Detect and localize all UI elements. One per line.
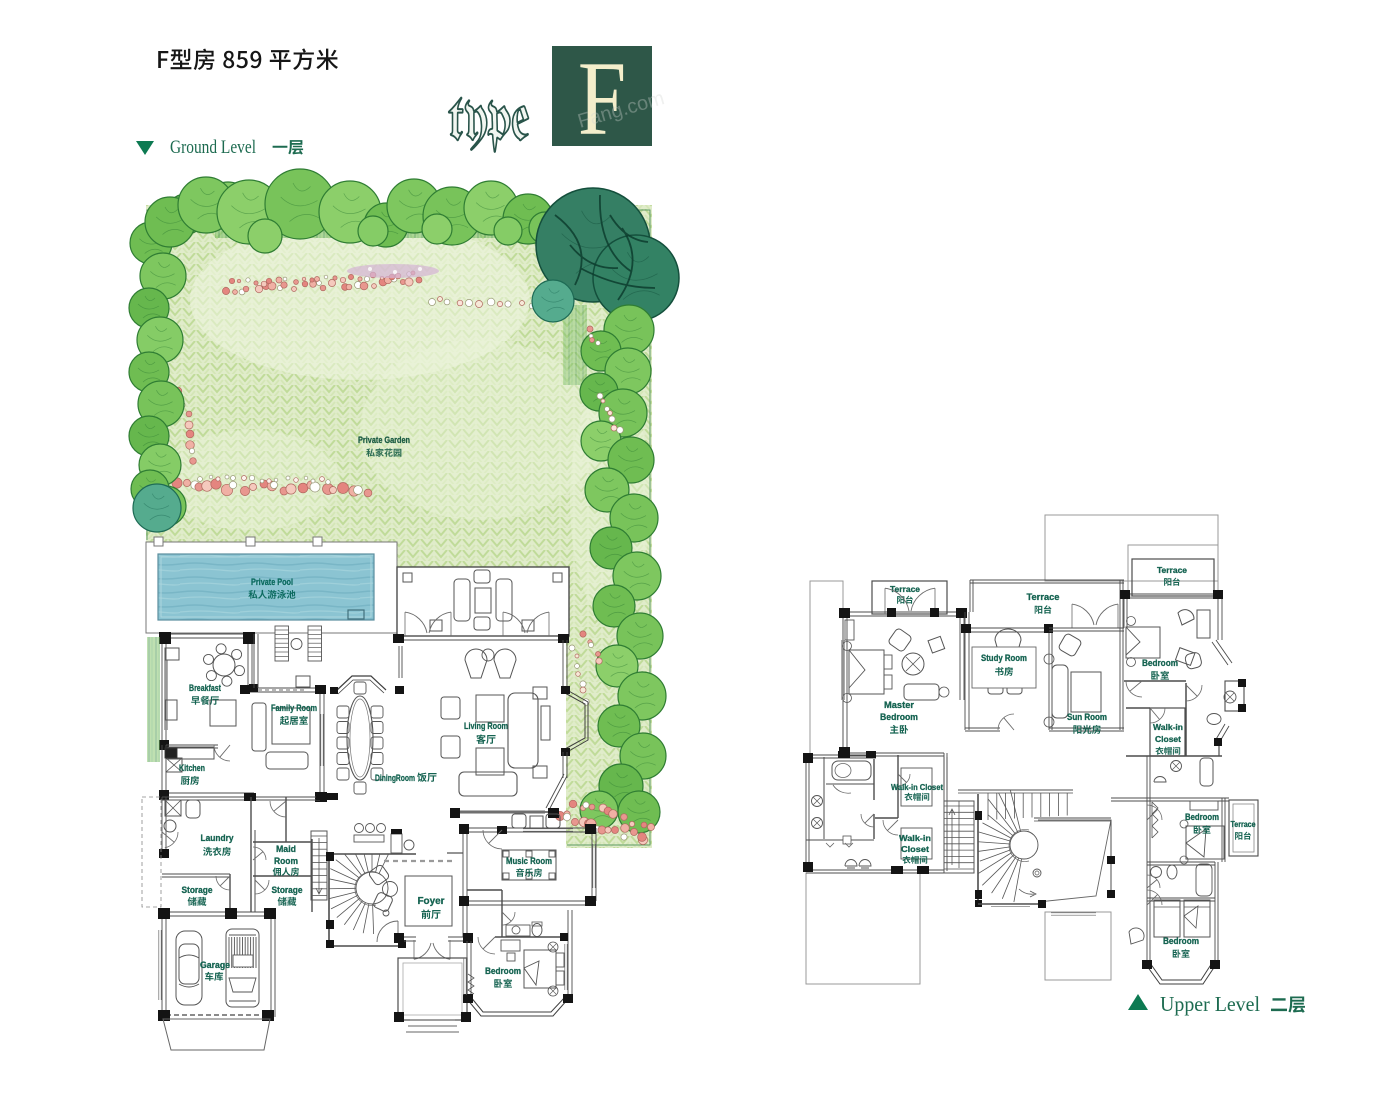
svg-text:Private Pool: Private Pool [251, 577, 293, 588]
svg-text:Music Room: Music Room [506, 856, 552, 866]
svg-text:Walk-in: Walk-in [899, 833, 931, 843]
svg-text:Laundry: Laundry [201, 833, 234, 843]
svg-text:Storage: Storage [272, 885, 303, 895]
svg-text:Living Room: Living Room [464, 721, 508, 732]
svg-text:DiningRoom: DiningRoom [375, 773, 415, 784]
svg-text:Storage: Storage [182, 885, 213, 895]
svg-text:Maid: Maid [276, 844, 296, 854]
svg-text:Garage: Garage [200, 960, 230, 970]
svg-text:Terrace: Terrace [890, 584, 920, 594]
svg-text:Family Room: Family Room [271, 703, 317, 713]
svg-text:Kitchen: Kitchen [179, 763, 205, 773]
svg-text:Bedroom: Bedroom [485, 966, 521, 976]
svg-text:Master: Master [884, 700, 915, 710]
svg-text:Breakfast: Breakfast [189, 683, 221, 693]
svg-text:Private Garden: Private Garden [358, 435, 410, 445]
svg-text:Bedroom: Bedroom [1185, 812, 1219, 822]
svg-text:Walk-in Closet: Walk-in Closet [891, 782, 943, 792]
svg-text:Bedroom: Bedroom [1163, 936, 1199, 946]
svg-text:Bedroom: Bedroom [1142, 658, 1178, 668]
svg-text:Closet: Closet [901, 844, 929, 854]
svg-text:Closet: Closet [1155, 734, 1181, 744]
svg-text:Bedroom: Bedroom [880, 712, 918, 722]
svg-text:Ground Level: Ground Level [170, 138, 256, 158]
svg-text:Terrace: Terrace [1231, 820, 1256, 829]
svg-text:Walk-in: Walk-in [1153, 722, 1183, 732]
svg-text:Room: Room [274, 856, 298, 866]
svg-text:Foyer: Foyer [418, 896, 445, 907]
svg-text:Sun Room: Sun Room [1067, 712, 1107, 722]
svg-text:Study Room: Study Room [981, 653, 1027, 663]
svg-text:Upper Level: Upper Level [1160, 992, 1260, 1016]
svg-text:Terrace: Terrace [1157, 565, 1187, 575]
svg-text:Terrace: Terrace [1027, 592, 1060, 602]
